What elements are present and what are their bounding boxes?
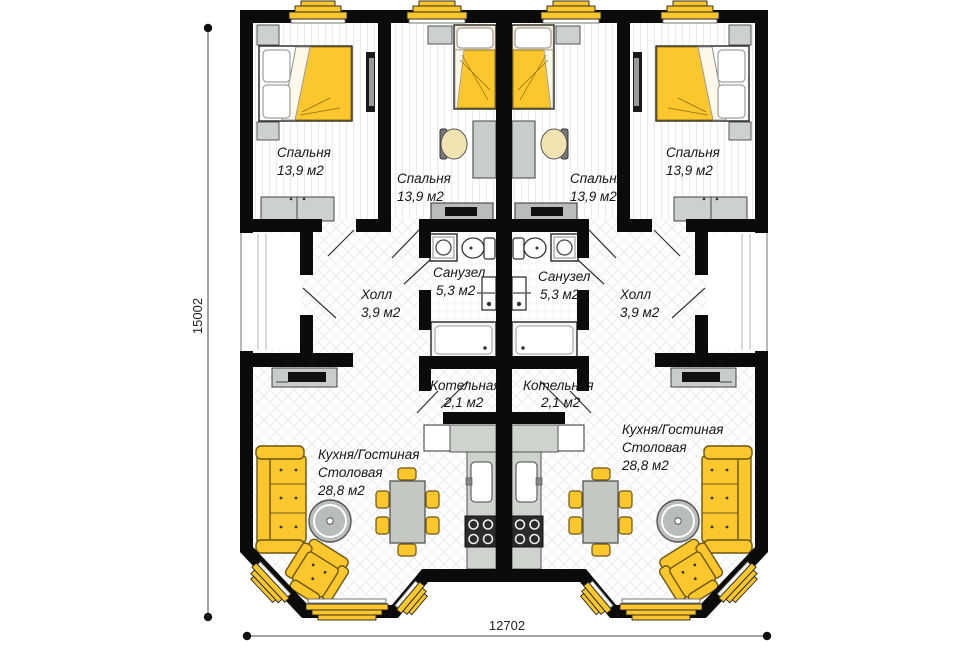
label-bath-right-name: Санузел xyxy=(538,269,591,284)
floor-plan-svg: Спальня 13,9 м2 Спальня 13,9 м2 Холл 3,9… xyxy=(0,0,978,650)
label-kitchen-left-line1: Кухня/Гостиная xyxy=(318,447,419,462)
label-bedroom-right-outer-name: Спальня xyxy=(666,145,720,160)
label-boiler-left-name: Котельная xyxy=(430,378,501,393)
label-kitchen-right-line2: Столовая xyxy=(622,440,687,455)
label-boiler-left-area: 2,1 м2 xyxy=(443,395,484,410)
label-hall-right-area: 3,9 м2 xyxy=(620,305,660,320)
label-boiler-right-area: 2,1 м2 xyxy=(540,395,581,410)
dimension-label-vertical: 15002 xyxy=(190,298,205,334)
label-kitchen-right-area: 28,8 м2 xyxy=(621,458,669,473)
label-bath-right-area: 5,3 м2 xyxy=(540,287,580,302)
label-bedroom-right-inner-name: Спальня xyxy=(570,171,624,186)
label-boiler-right-name: Котельная xyxy=(523,378,594,393)
label-bedroom-left-outer-name: Спальня xyxy=(277,145,331,160)
label-hall-right-name: Холл xyxy=(619,287,652,302)
label-bath-left-name: Санузел xyxy=(433,265,486,280)
label-hall-left-area: 3,9 м2 xyxy=(361,305,401,320)
label-bedroom-left-inner-area: 13,9 м2 xyxy=(397,189,444,204)
label-kitchen-right-line1: Кухня/Гостиная xyxy=(622,422,723,437)
label-hall-left-name: Холл xyxy=(360,287,393,302)
label-kitchen-left-area: 28,8 м2 xyxy=(317,483,365,498)
label-bedroom-right-inner-area: 13,9 м2 xyxy=(570,189,617,204)
label-bath-left-area: 5,3 м2 xyxy=(436,283,476,298)
party-wall xyxy=(496,10,512,582)
label-bedroom-right-outer-area: 13,9 м2 xyxy=(666,163,713,178)
label-bedroom-left-outer-area: 13,9 м2 xyxy=(277,163,324,178)
label-kitchen-left-line2: Столовая xyxy=(318,465,383,480)
dimension-label-horizontal: 12702 xyxy=(489,618,525,633)
label-bedroom-left-inner-name: Спальня xyxy=(397,171,451,186)
floor-plan-page: Спальня 13,9 м2 Спальня 13,9 м2 Холл 3,9… xyxy=(0,0,978,650)
